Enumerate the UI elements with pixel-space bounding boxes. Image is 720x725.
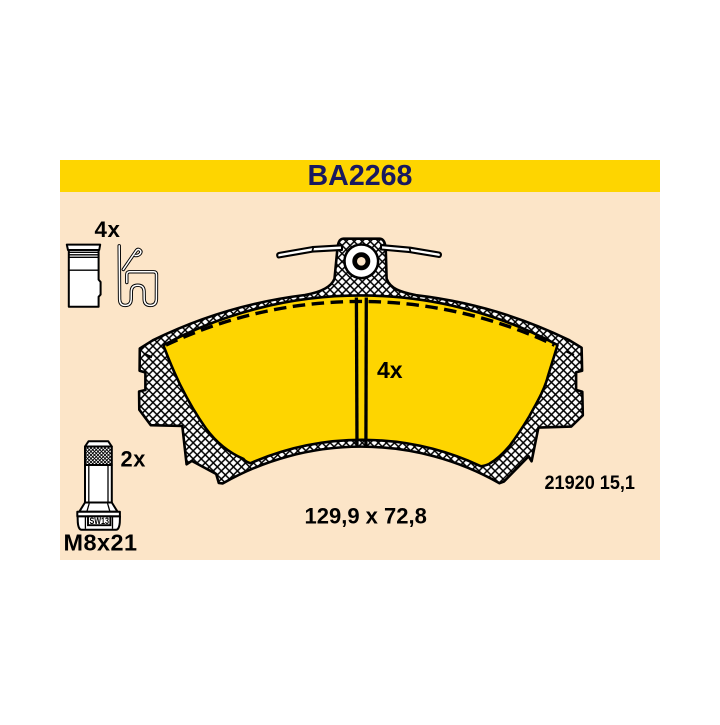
svg-text:2x: 2x bbox=[121, 447, 146, 472]
svg-text:SW13: SW13 bbox=[89, 516, 109, 526]
svg-text:4x: 4x bbox=[377, 357, 403, 383]
svg-text:M8x21: M8x21 bbox=[64, 530, 138, 556]
svg-text:21920 15,1: 21920 15,1 bbox=[545, 472, 636, 494]
svg-text:129,9 x 72,8: 129,9 x 72,8 bbox=[305, 504, 427, 529]
svg-text:4x: 4x bbox=[95, 217, 121, 242]
svg-text:BA2268: BA2268 bbox=[308, 160, 413, 192]
